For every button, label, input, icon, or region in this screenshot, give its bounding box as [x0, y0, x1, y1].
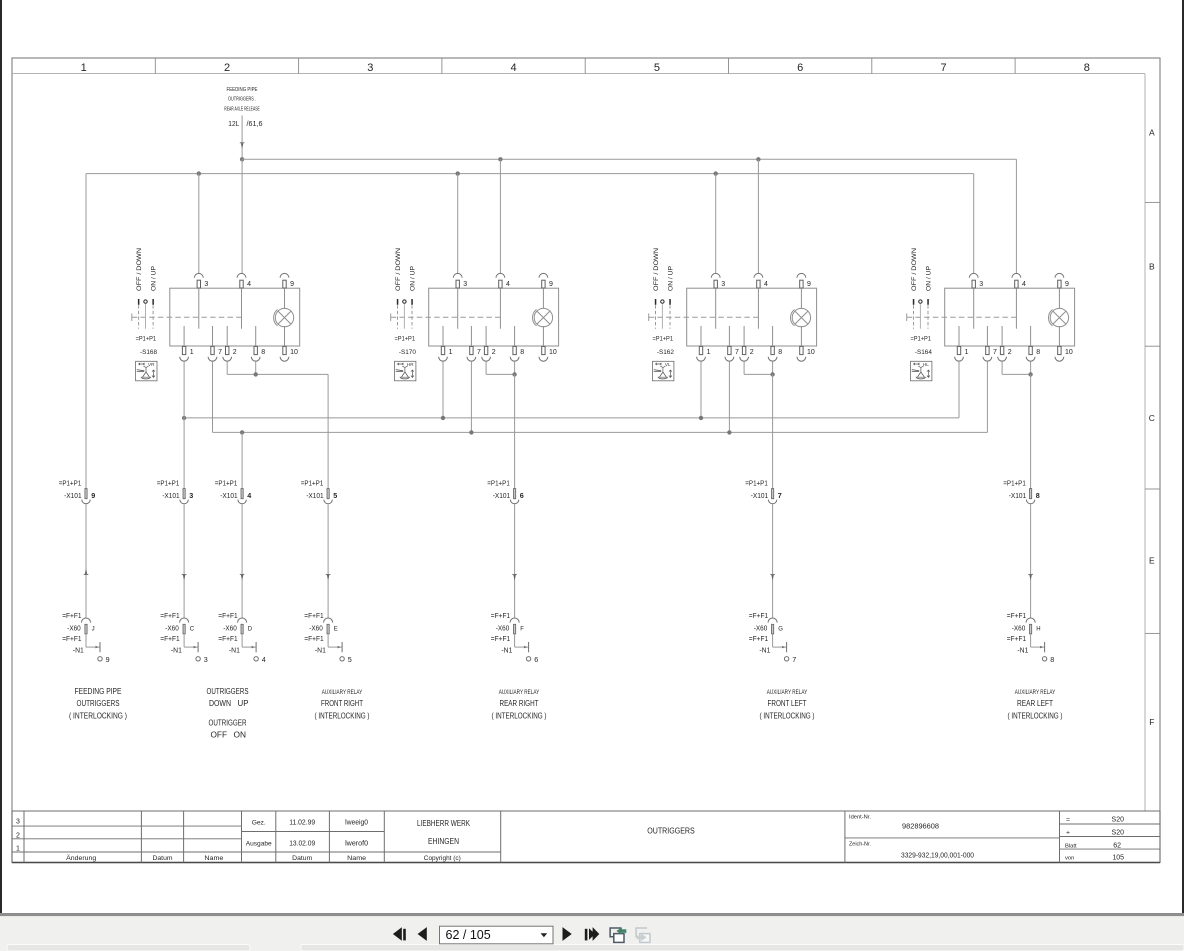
svg-text:REAR AXLE RELEASE: REAR AXLE RELEASE — [224, 107, 260, 113]
svg-text:3329-932,19,00,001-000: 3329-932,19,00,001-000 — [901, 853, 974, 860]
svg-text:3: 3 — [204, 655, 208, 664]
svg-text:8: 8 — [261, 349, 265, 356]
svg-text:lweeig0: lweeig0 — [345, 820, 368, 827]
svg-text:-N1: -N1 — [759, 646, 770, 655]
svg-text:2: 2 — [16, 833, 20, 840]
svg-text:FRONT RIGHT: FRONT RIGHT — [321, 699, 363, 708]
svg-text:/61,6: /61,6 — [247, 121, 263, 128]
svg-text:=F+F1: =F+F1 — [1007, 634, 1026, 643]
svg-text:OFF / DOWN: OFF / DOWN — [911, 248, 918, 291]
svg-text:=P1+P1: =P1+P1 — [136, 336, 157, 343]
svg-text:REAR RIGHT: REAR RIGHT — [500, 699, 539, 708]
svg-text:7: 7 — [993, 349, 997, 356]
svg-text:6: 6 — [520, 491, 524, 500]
svg-text:AUXILIARY RELAY: AUXILIARY RELAY — [322, 689, 363, 696]
svg-text:=P1+P1: =P1+P1 — [395, 336, 416, 343]
svg-text:13.02.09: 13.02.09 — [289, 841, 315, 848]
svg-text:C: C — [1149, 413, 1155, 423]
svg-text:-X101: -X101 — [493, 491, 511, 500]
svg-text:OFF / DOWN: OFF / DOWN — [136, 248, 143, 291]
svg-text:-N1: -N1 — [1017, 646, 1028, 655]
svg-text:8: 8 — [1036, 349, 1040, 356]
svg-text:E: E — [1149, 555, 1155, 565]
svg-text:=F+F1: =F+F1 — [62, 634, 81, 643]
svg-text:REAR LEFT: REAR LEFT — [1017, 699, 1053, 708]
svg-text:12L: 12L — [228, 121, 239, 128]
svg-text:Datum: Datum — [292, 855, 313, 862]
svg-text:+: + — [1066, 829, 1070, 836]
svg-text:-X101: -X101 — [1009, 491, 1027, 500]
svg-text:Blatt: Blatt — [1065, 843, 1077, 849]
svg-text:2: 2 — [1008, 349, 1012, 356]
svg-text:=F+F1: =F+F1 — [749, 634, 768, 643]
svg-text:7: 7 — [735, 349, 739, 356]
svg-text:A: A — [1149, 127, 1155, 137]
svg-text:7: 7 — [940, 62, 946, 74]
svg-text:=F+F1: =F+F1 — [304, 634, 323, 643]
svg-text:7: 7 — [778, 491, 782, 500]
svg-text:F: F — [1149, 717, 1154, 727]
svg-text:3: 3 — [189, 491, 193, 500]
svg-text:FRONT LEFT: FRONT LEFT — [768, 699, 807, 708]
svg-text:5: 5 — [333, 491, 337, 500]
svg-text:8: 8 — [1036, 491, 1040, 500]
svg-text:( INTERLOCKING ): ( INTERLOCKING ) — [315, 711, 370, 720]
svg-text:Name: Name — [347, 855, 366, 862]
svg-text:4: 4 — [511, 62, 517, 74]
svg-text:B: B — [1149, 261, 1155, 271]
svg-text:9: 9 — [290, 281, 294, 288]
svg-text:9: 9 — [807, 281, 811, 288]
svg-text:LIEBHERR WERK: LIEBHERR WERK — [417, 819, 471, 828]
svg-text:1: 1 — [16, 846, 20, 853]
svg-text:=F+F1: =F+F1 — [160, 634, 179, 643]
svg-text:-X101: -X101 — [306, 491, 324, 500]
svg-text:8: 8 — [520, 349, 524, 356]
svg-text:-X60: -X60 — [223, 624, 237, 633]
svg-text:=P1+P1: =P1+P1 — [157, 478, 180, 487]
svg-text:ON / UP: ON / UP — [668, 266, 675, 291]
svg-text:2: 2 — [233, 349, 237, 356]
svg-text:FEEDING PIPE: FEEDING PIPE — [75, 687, 122, 696]
svg-text:=P1+P1: =P1+P1 — [745, 478, 768, 487]
svg-text:-X60: -X60 — [754, 624, 768, 633]
svg-text:8: 8 — [1050, 655, 1054, 664]
svg-text:EHINGEN: EHINGEN — [428, 837, 459, 846]
svg-text:9: 9 — [1065, 281, 1069, 288]
svg-text:=P1+P1: =P1+P1 — [911, 336, 932, 343]
svg-text:S20: S20 — [1112, 829, 1125, 836]
svg-text:2: 2 — [224, 62, 230, 74]
svg-text:3: 3 — [367, 62, 373, 74]
svg-text:OFF / DOWN: OFF / DOWN — [395, 248, 402, 291]
svg-text:( INTERLOCKING ): ( INTERLOCKING ) — [69, 711, 127, 720]
svg-text:1: 1 — [965, 349, 969, 356]
svg-text:11.02.99: 11.02.99 — [289, 820, 315, 827]
svg-text:S20: S20 — [1112, 817, 1125, 824]
svg-text:HL: HL — [923, 362, 929, 367]
svg-text:3: 3 — [721, 281, 725, 288]
svg-text:OUTRIGGERS: OUTRIGGERS — [77, 699, 120, 708]
svg-text:( INTERLOCKING ): ( INTERLOCKING ) — [1008, 711, 1063, 720]
svg-text:C: C — [190, 626, 195, 632]
svg-text:AUXILIARY RELAY: AUXILIARY RELAY — [1015, 689, 1056, 696]
svg-text:4: 4 — [247, 281, 251, 288]
svg-text:982896608: 982896608 — [902, 822, 939, 831]
svg-text:OUTRIGGERS: OUTRIGGERS — [647, 827, 695, 836]
svg-text:=F+F1: =F+F1 — [62, 611, 81, 620]
svg-text:-X60: -X60 — [1012, 624, 1026, 633]
svg-text:=F+F1: =F+F1 — [749, 611, 768, 620]
svg-text:105: 105 — [1112, 855, 1124, 862]
svg-text:VR: VR — [148, 362, 155, 367]
svg-text:4: 4 — [764, 281, 768, 288]
svg-text:-S162: -S162 — [657, 349, 674, 356]
svg-text:5: 5 — [348, 655, 352, 664]
svg-text:10: 10 — [807, 349, 815, 356]
svg-text:FEEDING PIPE: FEEDING PIPE — [227, 87, 258, 93]
svg-text:ON / UP: ON / UP — [410, 266, 417, 291]
svg-text:ON / UP: ON / UP — [926, 266, 933, 291]
svg-text:10: 10 — [1065, 349, 1073, 356]
svg-text:-X101: -X101 — [751, 491, 769, 500]
svg-text:Zeich-Nr.: Zeich-Nr. — [849, 842, 871, 848]
svg-text:( INTERLOCKING ): ( INTERLOCKING ) — [760, 711, 815, 720]
svg-text:Ident-Nr.: Ident-Nr. — [849, 815, 871, 821]
svg-text:-S164: -S164 — [915, 349, 932, 356]
svg-text:4: 4 — [1022, 281, 1026, 288]
svg-text:-N1: -N1 — [315, 646, 326, 655]
svg-text:=P1+P1: =P1+P1 — [487, 478, 510, 487]
svg-text:von: von — [1065, 856, 1074, 862]
svg-text:-N1: -N1 — [73, 646, 84, 655]
svg-text:-X101: -X101 — [64, 491, 82, 500]
svg-text:( INTERLOCKING ): ( INTERLOCKING ) — [492, 711, 547, 720]
svg-text:1: 1 — [449, 349, 453, 356]
svg-text:4: 4 — [247, 491, 251, 500]
svg-text:J: J — [92, 626, 95, 632]
svg-text:-X101: -X101 — [220, 491, 238, 500]
svg-text:4: 4 — [506, 281, 510, 288]
svg-text:=: = — [1066, 817, 1070, 824]
svg-text:10: 10 — [549, 349, 557, 356]
svg-text:=F+F1: =F+F1 — [491, 611, 510, 620]
svg-text:UP: UP — [238, 699, 249, 708]
svg-text:=F+F1: =F+F1 — [218, 634, 237, 643]
svg-text:=F+F1: =F+F1 — [491, 634, 510, 643]
svg-text:OUTRIGGERS .: OUTRIGGERS . — [228, 97, 256, 103]
svg-text:7: 7 — [792, 655, 796, 664]
svg-text:OFF / DOWN: OFF / DOWN — [653, 248, 660, 291]
svg-text:-N1: -N1 — [501, 646, 512, 655]
svg-text:3: 3 — [204, 281, 208, 288]
svg-text:62 / 105: 62 / 105 — [446, 928, 491, 942]
svg-text:Änderung: Änderung — [66, 854, 96, 862]
svg-text:2: 2 — [492, 349, 496, 356]
svg-text:10: 10 — [290, 349, 298, 356]
svg-text:AUXILIARY RELAY: AUXILIARY RELAY — [767, 689, 808, 696]
svg-text:-S168: -S168 — [140, 349, 157, 356]
svg-text:8: 8 — [778, 349, 782, 356]
svg-text:F: F — [520, 626, 524, 632]
svg-text:Name: Name — [204, 855, 223, 862]
svg-text:HR: HR — [407, 362, 414, 367]
svg-text:=P1+P1: =P1+P1 — [301, 478, 324, 487]
svg-text:8: 8 — [1084, 62, 1090, 74]
svg-text:-X60: -X60 — [165, 624, 179, 633]
svg-text:=F+F1: =F+F1 — [160, 611, 179, 620]
svg-text:-S170: -S170 — [399, 349, 416, 356]
svg-text:9: 9 — [549, 281, 553, 288]
svg-text:-N1: -N1 — [229, 646, 240, 655]
svg-text:3: 3 — [979, 281, 983, 288]
svg-text:-X60: -X60 — [309, 624, 323, 633]
svg-text:7: 7 — [477, 349, 481, 356]
svg-text:Copyright (c): Copyright (c) — [424, 855, 461, 862]
svg-text:OUTRIGGER: OUTRIGGER — [209, 718, 247, 727]
svg-text:=P1+P1: =P1+P1 — [59, 478, 82, 487]
svg-text:ON: ON — [234, 731, 247, 740]
svg-text:1: 1 — [81, 62, 87, 74]
svg-text:=P1+P1: =P1+P1 — [1003, 478, 1026, 487]
svg-text:5: 5 — [654, 62, 660, 74]
svg-text:AUXILIARY RELAY: AUXILIARY RELAY — [499, 689, 540, 696]
svg-text:G: G — [778, 626, 783, 632]
svg-text:-N1: -N1 — [171, 646, 182, 655]
svg-text:Ausgabe: Ausgabe — [246, 841, 272, 848]
svg-text:E: E — [334, 626, 338, 632]
svg-text:3: 3 — [463, 281, 467, 288]
svg-text:OFF: OFF — [211, 731, 228, 740]
svg-text:62: 62 — [1113, 842, 1121, 849]
svg-text:OUTRIGGERS: OUTRIGGERS — [207, 687, 249, 696]
svg-text:4: 4 — [262, 655, 266, 664]
svg-text:6: 6 — [797, 62, 803, 74]
svg-text:9: 9 — [91, 491, 95, 500]
svg-text:Gez.: Gez. — [252, 820, 266, 827]
svg-text:=F+F1: =F+F1 — [218, 611, 237, 620]
svg-text:VL: VL — [665, 362, 671, 367]
svg-text:-X60: -X60 — [496, 624, 510, 633]
svg-text:H: H — [1036, 626, 1040, 632]
svg-text:2: 2 — [750, 349, 754, 356]
svg-text:9: 9 — [106, 655, 110, 664]
svg-text:6: 6 — [534, 655, 538, 664]
svg-text:1: 1 — [190, 349, 194, 356]
svg-text:-X60: -X60 — [67, 624, 81, 633]
svg-text:3: 3 — [16, 818, 20, 825]
svg-text:=F+F1: =F+F1 — [1007, 611, 1026, 620]
svg-text:DOWN: DOWN — [209, 699, 231, 708]
svg-text:-X101: -X101 — [162, 491, 180, 500]
svg-text:=F+F1: =F+F1 — [304, 611, 323, 620]
svg-text:Datum: Datum — [153, 855, 174, 862]
svg-text:D: D — [248, 626, 253, 632]
svg-text:1: 1 — [707, 349, 711, 356]
svg-text:lwerof0: lwerof0 — [345, 841, 368, 848]
svg-text:ON / UP: ON / UP — [151, 266, 158, 291]
svg-text:7: 7 — [218, 349, 222, 356]
svg-text:=P1+P1: =P1+P1 — [653, 336, 674, 343]
svg-text:=P1+P1: =P1+P1 — [215, 478, 238, 487]
